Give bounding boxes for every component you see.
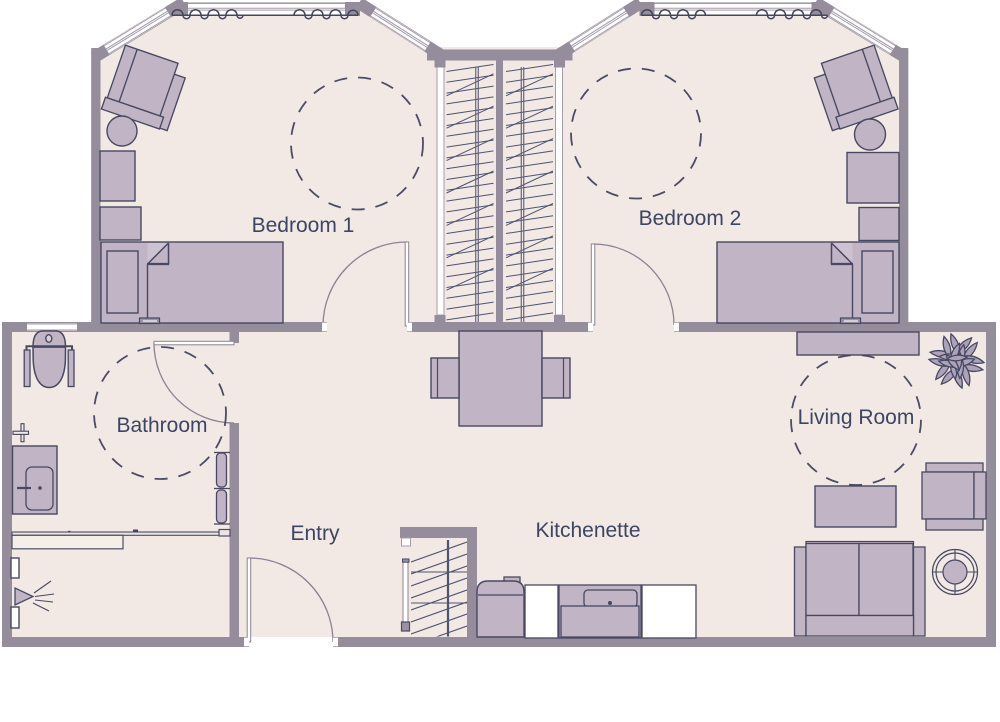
svg-text:Bedroom 2: Bedroom 2 xyxy=(639,207,742,230)
svg-text:Living Room: Living Room xyxy=(798,406,915,429)
svg-text:Bedroom 1: Bedroom 1 xyxy=(252,214,355,237)
svg-text:Bathroom: Bathroom xyxy=(116,414,207,437)
svg-text:Entry: Entry xyxy=(290,522,340,545)
svg-text:Kitchenette: Kitchenette xyxy=(535,519,640,542)
